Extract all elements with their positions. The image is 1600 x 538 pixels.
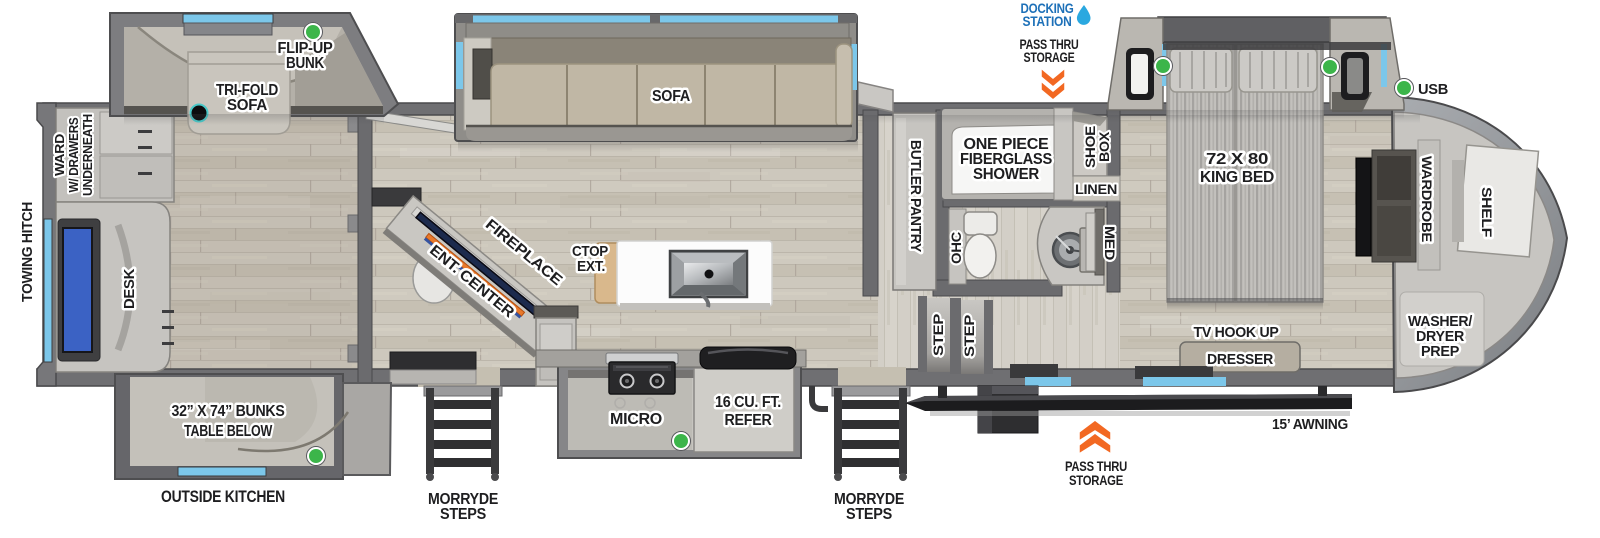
- svg-text:SOFA: SOFA: [227, 97, 268, 114]
- svg-text:MED: MED: [1102, 226, 1118, 260]
- svg-text:W/ DRAWERS: W/ DRAWERS: [67, 118, 81, 193]
- svg-text:STEP: STEP: [930, 314, 946, 356]
- svg-text:TOWING HITCH: TOWING HITCH: [19, 202, 36, 302]
- svg-text:UNDERNEATH: UNDERNEATH: [81, 114, 95, 196]
- svg-text:32” X 74” BUNKS: 32” X 74” BUNKS: [172, 403, 285, 420]
- svg-text:LINEN: LINEN: [1075, 181, 1117, 197]
- svg-text:DESK: DESK: [121, 269, 138, 309]
- svg-text:SOFA: SOFA: [652, 88, 691, 105]
- svg-text:PREP: PREP: [1421, 343, 1459, 360]
- svg-text:TV HOOK UP: TV HOOK UP: [1194, 324, 1279, 341]
- svg-text:STEPS: STEPS: [846, 506, 893, 523]
- svg-text:72 X 80: 72 X 80: [1206, 151, 1268, 168]
- svg-text:15’ AWNING: 15’ AWNING: [1272, 416, 1348, 433]
- svg-text:MICRO: MICRO: [610, 411, 662, 428]
- svg-text:STEPS: STEPS: [440, 506, 487, 523]
- svg-text:STATION: STATION: [1023, 14, 1072, 29]
- svg-text:STORAGE: STORAGE: [1024, 50, 1075, 65]
- svg-text:REFER: REFER: [725, 412, 773, 429]
- svg-text:OHC: OHC: [948, 232, 964, 264]
- svg-text:WARDROBE: WARDROBE: [1419, 156, 1435, 242]
- svg-text:OUTSIDE KITCHEN: OUTSIDE KITCHEN: [161, 488, 285, 506]
- svg-text:BUTLER PANTRY: BUTLER PANTRY: [907, 140, 923, 253]
- svg-text:16 CU. FT.: 16 CU. FT.: [715, 394, 781, 411]
- svg-text:USB: USB: [1418, 82, 1448, 98]
- svg-text:STORAGE: STORAGE: [1069, 472, 1123, 488]
- svg-text:DRESSER: DRESSER: [1207, 351, 1273, 368]
- svg-text:SHELF: SHELF: [1479, 187, 1495, 238]
- svg-text:KING BED: KING BED: [1200, 169, 1274, 186]
- svg-text:STEP: STEP: [961, 315, 977, 357]
- svg-text:EXT.: EXT.: [577, 258, 605, 275]
- svg-text:SHOWER: SHOWER: [973, 166, 1039, 183]
- svg-text:TABLE BELOW: TABLE BELOW: [184, 423, 273, 440]
- svg-text:BUNK: BUNK: [286, 55, 325, 72]
- svg-text:WARD: WARD: [53, 134, 67, 176]
- svg-text:BOX: BOX: [1096, 131, 1112, 162]
